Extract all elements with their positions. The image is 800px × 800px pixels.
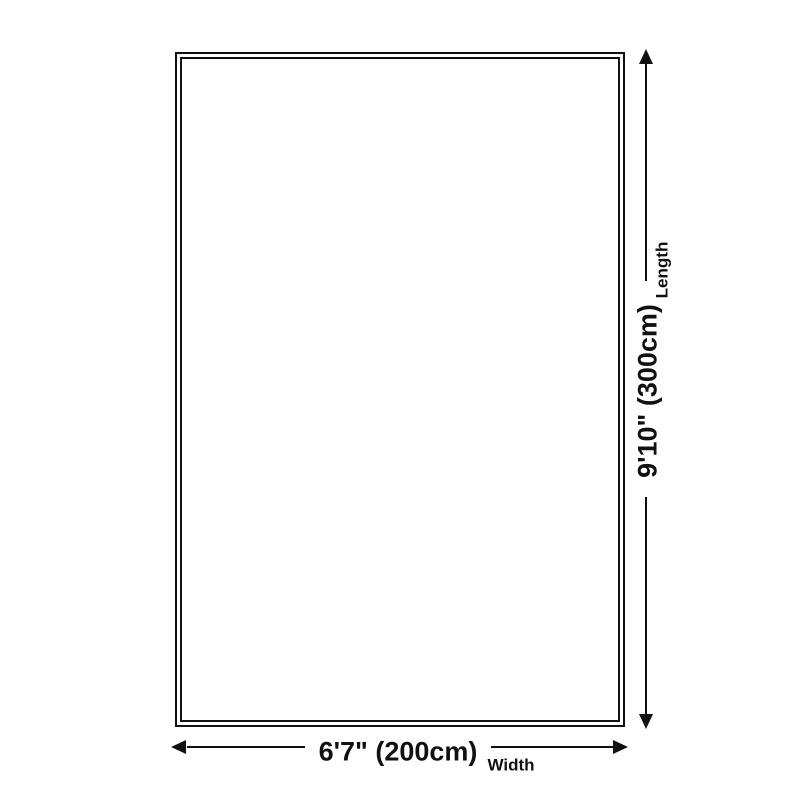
length-line-top-segment — [645, 62, 647, 281]
width-line-left-segment — [187, 746, 305, 748]
arrow-left-icon — [171, 740, 186, 754]
width-value: 6'7" (200cm) — [319, 739, 478, 766]
arrow-down-icon — [639, 714, 653, 729]
width-line-right-segment — [491, 746, 613, 748]
length-label: Length — [654, 242, 671, 299]
arrow-right-icon — [613, 740, 628, 754]
rug-outline — [175, 52, 625, 727]
length-value: 9'10" (300cm) — [635, 304, 662, 478]
dimension-diagram: 9'10" (300cm) Length 6'7" (200cm) Width — [0, 0, 800, 800]
width-label: Width — [487, 757, 534, 774]
length-line-bottom-segment — [645, 497, 647, 714]
rug-inner-border — [180, 57, 620, 722]
